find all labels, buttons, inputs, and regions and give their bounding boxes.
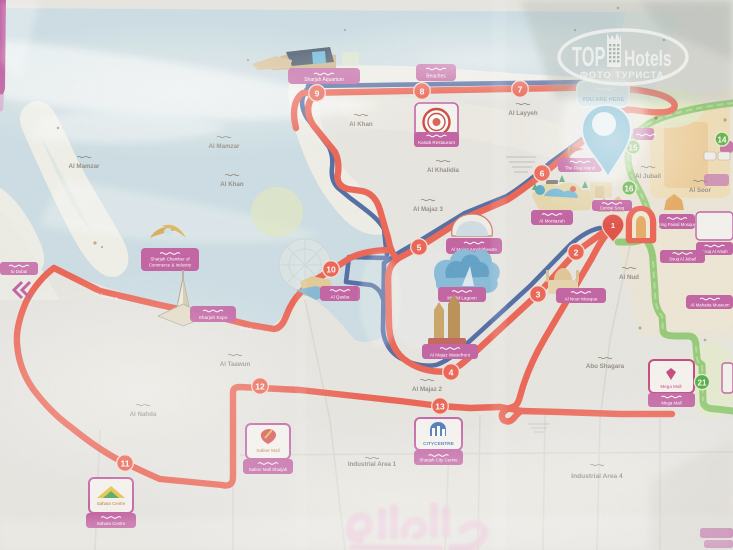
svg-text:ФОТО ТУРИСТА: ФОТО ТУРИСТА (580, 70, 664, 81)
svg-text:Hotels: Hotels (624, 48, 672, 72)
svg-text:TOP: TOP (572, 42, 605, 72)
